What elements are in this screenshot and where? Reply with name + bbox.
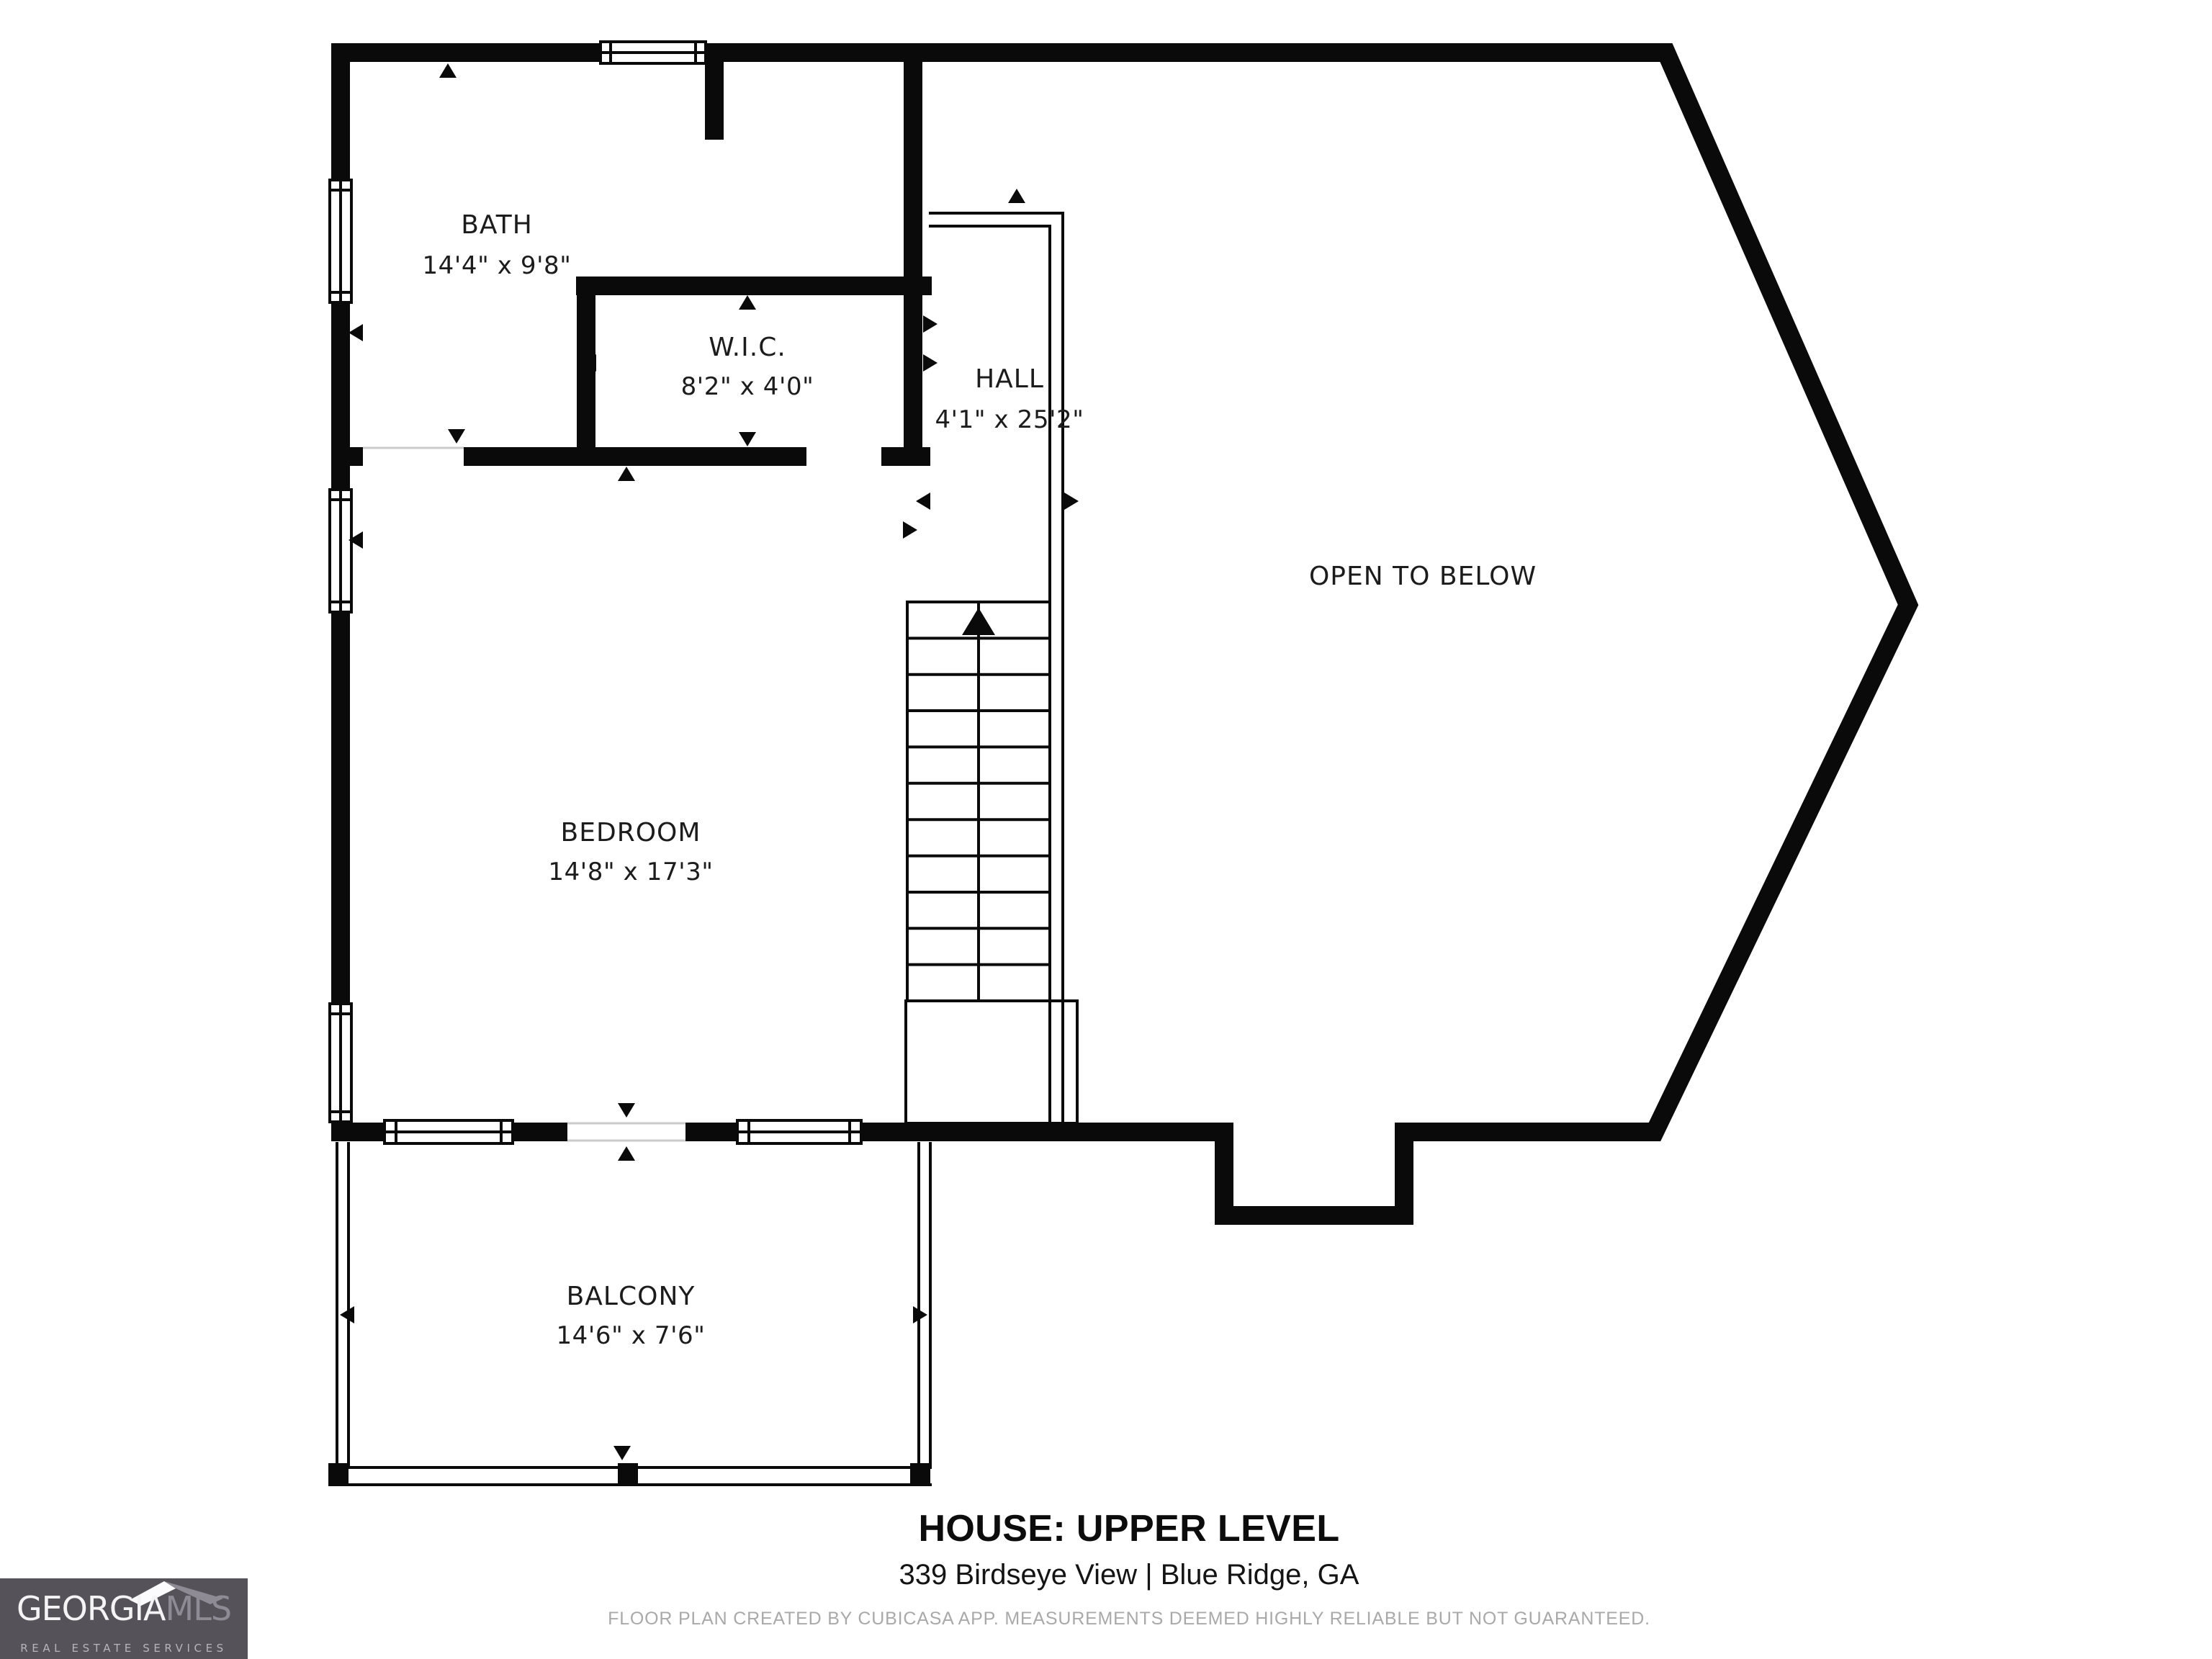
room-label-balcony: BALCONY xyxy=(567,1282,696,1311)
disclaimer-text: FLOOR PLAN CREATED BY CUBICASA APP. MEAS… xyxy=(23,1609,2212,1629)
marker-right-icon xyxy=(903,521,917,539)
room-label-hall: HALL xyxy=(975,364,1044,394)
room-label-bedroom: BEDROOM xyxy=(561,818,701,848)
logo-brand-text: GEORGIAMLS xyxy=(0,1591,248,1629)
window-icon xyxy=(330,180,351,302)
floor-plan-page: BATH 14'4" x 9'8" W.I.C. 8'2" x 4'0" HAL… xyxy=(0,0,2212,1659)
marker-up-icon xyxy=(439,63,457,78)
marker-down-icon xyxy=(613,1446,631,1460)
window-icon xyxy=(330,490,351,612)
staircase xyxy=(906,602,1077,1123)
marker-down-icon xyxy=(618,1103,635,1118)
page-title: HOUSE: UPPER LEVEL xyxy=(23,1506,2212,1551)
room-label-bath: BATH xyxy=(461,210,533,240)
window-icon xyxy=(601,42,706,63)
room-dims-wic: 8'2" x 4'0" xyxy=(681,372,814,401)
logo-brand-secondary: MLS xyxy=(166,1591,232,1629)
marker-up-icon xyxy=(618,1146,635,1161)
marker-right-icon xyxy=(923,354,938,372)
property-address: 339 Birdseye View | Blue Ridge, GA xyxy=(23,1560,2212,1593)
outer-wall-outline xyxy=(341,53,1908,1215)
marker-up-icon xyxy=(1008,189,1025,203)
logo-tagline: REAL ESTATE SERVICES xyxy=(0,1642,248,1655)
georgia-mls-logo: GEORGIAMLS REAL ESTATE SERVICES xyxy=(0,1578,248,1659)
door-opening-lines xyxy=(363,448,685,1141)
room-dims-bedroom: 14'8" x 17'3" xyxy=(548,858,713,886)
window-icon xyxy=(385,1120,513,1143)
room-label-wic: W.I.C. xyxy=(709,333,786,362)
walls xyxy=(331,43,1908,1215)
stair-landing xyxy=(906,1001,1077,1123)
room-dims-balcony: 14'6" x 7'6" xyxy=(556,1321,705,1350)
windows xyxy=(330,42,861,1143)
marker-up-icon xyxy=(739,295,756,310)
marker-down-icon xyxy=(448,429,465,444)
floor-plan-drawing: BATH 14'4" x 9'8" W.I.C. 8'2" x 4'0" HAL… xyxy=(0,0,2212,1659)
window-icon xyxy=(737,1120,861,1143)
marker-left-icon xyxy=(349,324,363,341)
marker-right-icon xyxy=(1064,493,1079,510)
balcony-railing xyxy=(328,1142,932,1486)
stair-railing xyxy=(929,213,1063,1123)
footer: HOUSE: UPPER LEVEL 339 Birdseye View | B… xyxy=(23,1506,2212,1629)
room-dims-hall: 4'1" x 25'2" xyxy=(935,405,1084,434)
marker-left-icon xyxy=(916,493,930,510)
marker-down-icon xyxy=(739,432,756,446)
marker-right-icon xyxy=(923,315,938,333)
room-dims-bath: 14'4" x 9'8" xyxy=(422,251,571,280)
stairs-up-arrow-head-icon xyxy=(962,608,995,635)
window-icon xyxy=(330,1004,351,1122)
room-label-open-to-below: OPEN TO BELOW xyxy=(1309,562,1537,591)
marker-up-icon xyxy=(618,467,635,481)
logo-brand-primary: GEORGIA xyxy=(17,1591,166,1629)
